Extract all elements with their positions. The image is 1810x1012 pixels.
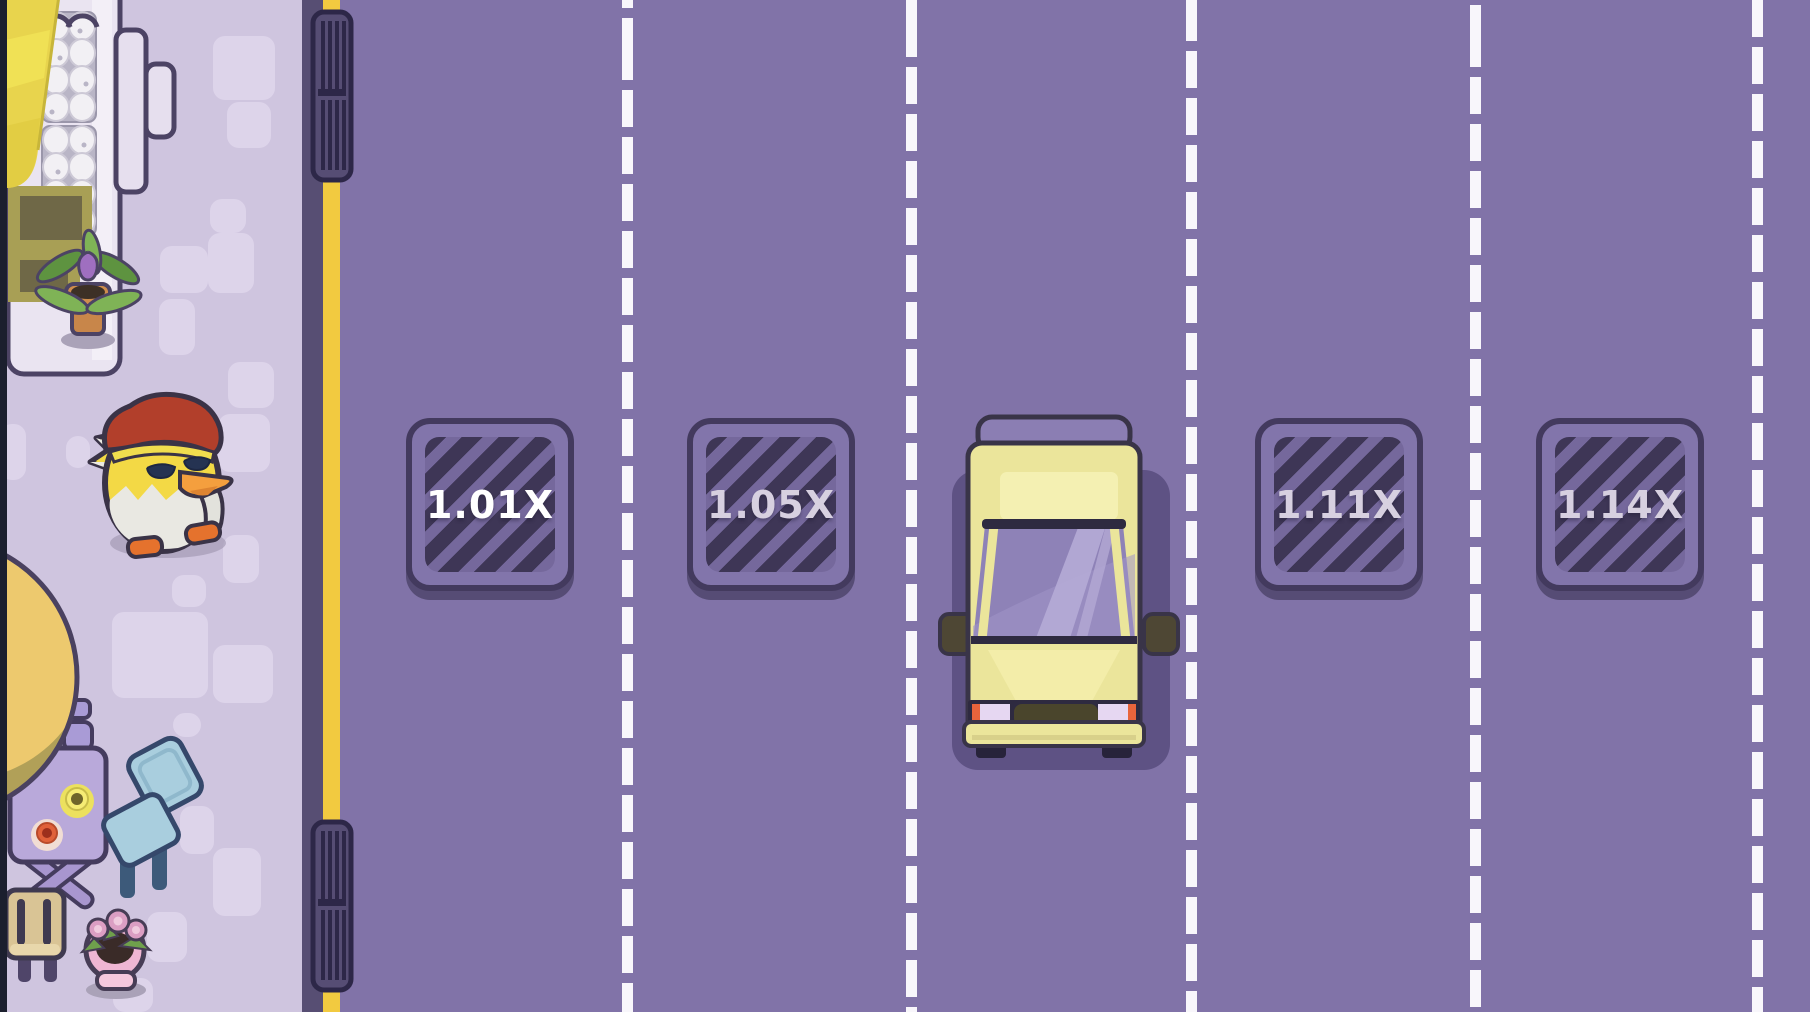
vehicle-yellow-car (938, 408, 1182, 772)
lane-divider (1470, 0, 1481, 1012)
game-viewport: 1.01X 1.05X 1.11X 1.14X (0, 0, 1810, 1012)
car-mirror-right (1144, 614, 1178, 654)
lane-divider (1186, 0, 1197, 1012)
multiplier-label: 1.01X (412, 424, 568, 585)
multiplier-tile-lane-1[interactable]: 1.01X (406, 418, 574, 591)
lane-divider (622, 0, 633, 1012)
screen-edge-strip (0, 0, 7, 1012)
car-sunroof (1000, 472, 1118, 520)
lane-divider (1752, 0, 1763, 1012)
road-vent-grate-bottom (310, 818, 354, 998)
car-bumper-bar (964, 722, 1144, 746)
multiplier-tile-lane-5[interactable]: 1.14X (1536, 418, 1704, 591)
multiplier-label: 1.05X (693, 424, 849, 585)
road-vent-grate-top (310, 8, 354, 188)
sidewalk (0, 0, 302, 1012)
lane-divider (906, 0, 917, 1012)
multiplier-tile-lane-4[interactable]: 1.11X (1255, 418, 1423, 591)
multiplier-tile-lane-2[interactable]: 1.05X (687, 418, 855, 591)
multiplier-label: 1.11X (1261, 424, 1417, 585)
multiplier-label: 1.14X (1542, 424, 1698, 585)
